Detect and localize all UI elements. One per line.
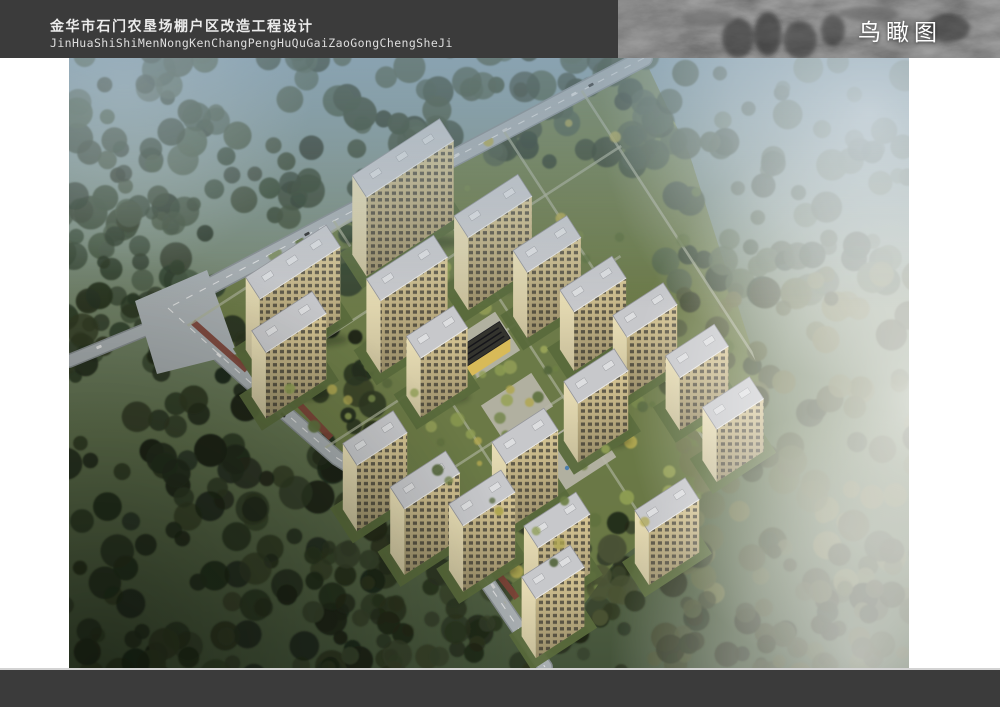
stone-relief-texture-image <box>618 0 1000 58</box>
relief-banner: 鸟瞰图 <box>618 0 1000 58</box>
title-bar: 金华市石门农垦场棚户区改造工程设计 JinHuaShiShiMenNongKen… <box>0 0 1000 58</box>
presentation-board: 金华市石门农垦场棚户区改造工程设计 JinHuaShiShiMenNongKen… <box>0 0 1000 707</box>
aerial-rendering-image <box>69 58 909 668</box>
project-title-pinyin: JinHuaShiShiMenNongKenChangPengHuQuGaiZa… <box>50 37 618 50</box>
view-type-label: 鸟瞰图 <box>858 13 942 47</box>
project-title-cn: 金华市石门农垦场棚户区改造工程设计 <box>50 19 618 34</box>
image-plate <box>0 58 1000 668</box>
project-title-block: 金华市石门农垦场棚户区改造工程设计 JinHuaShiShiMenNongKen… <box>0 0 618 58</box>
footer-bar <box>0 668 1000 707</box>
